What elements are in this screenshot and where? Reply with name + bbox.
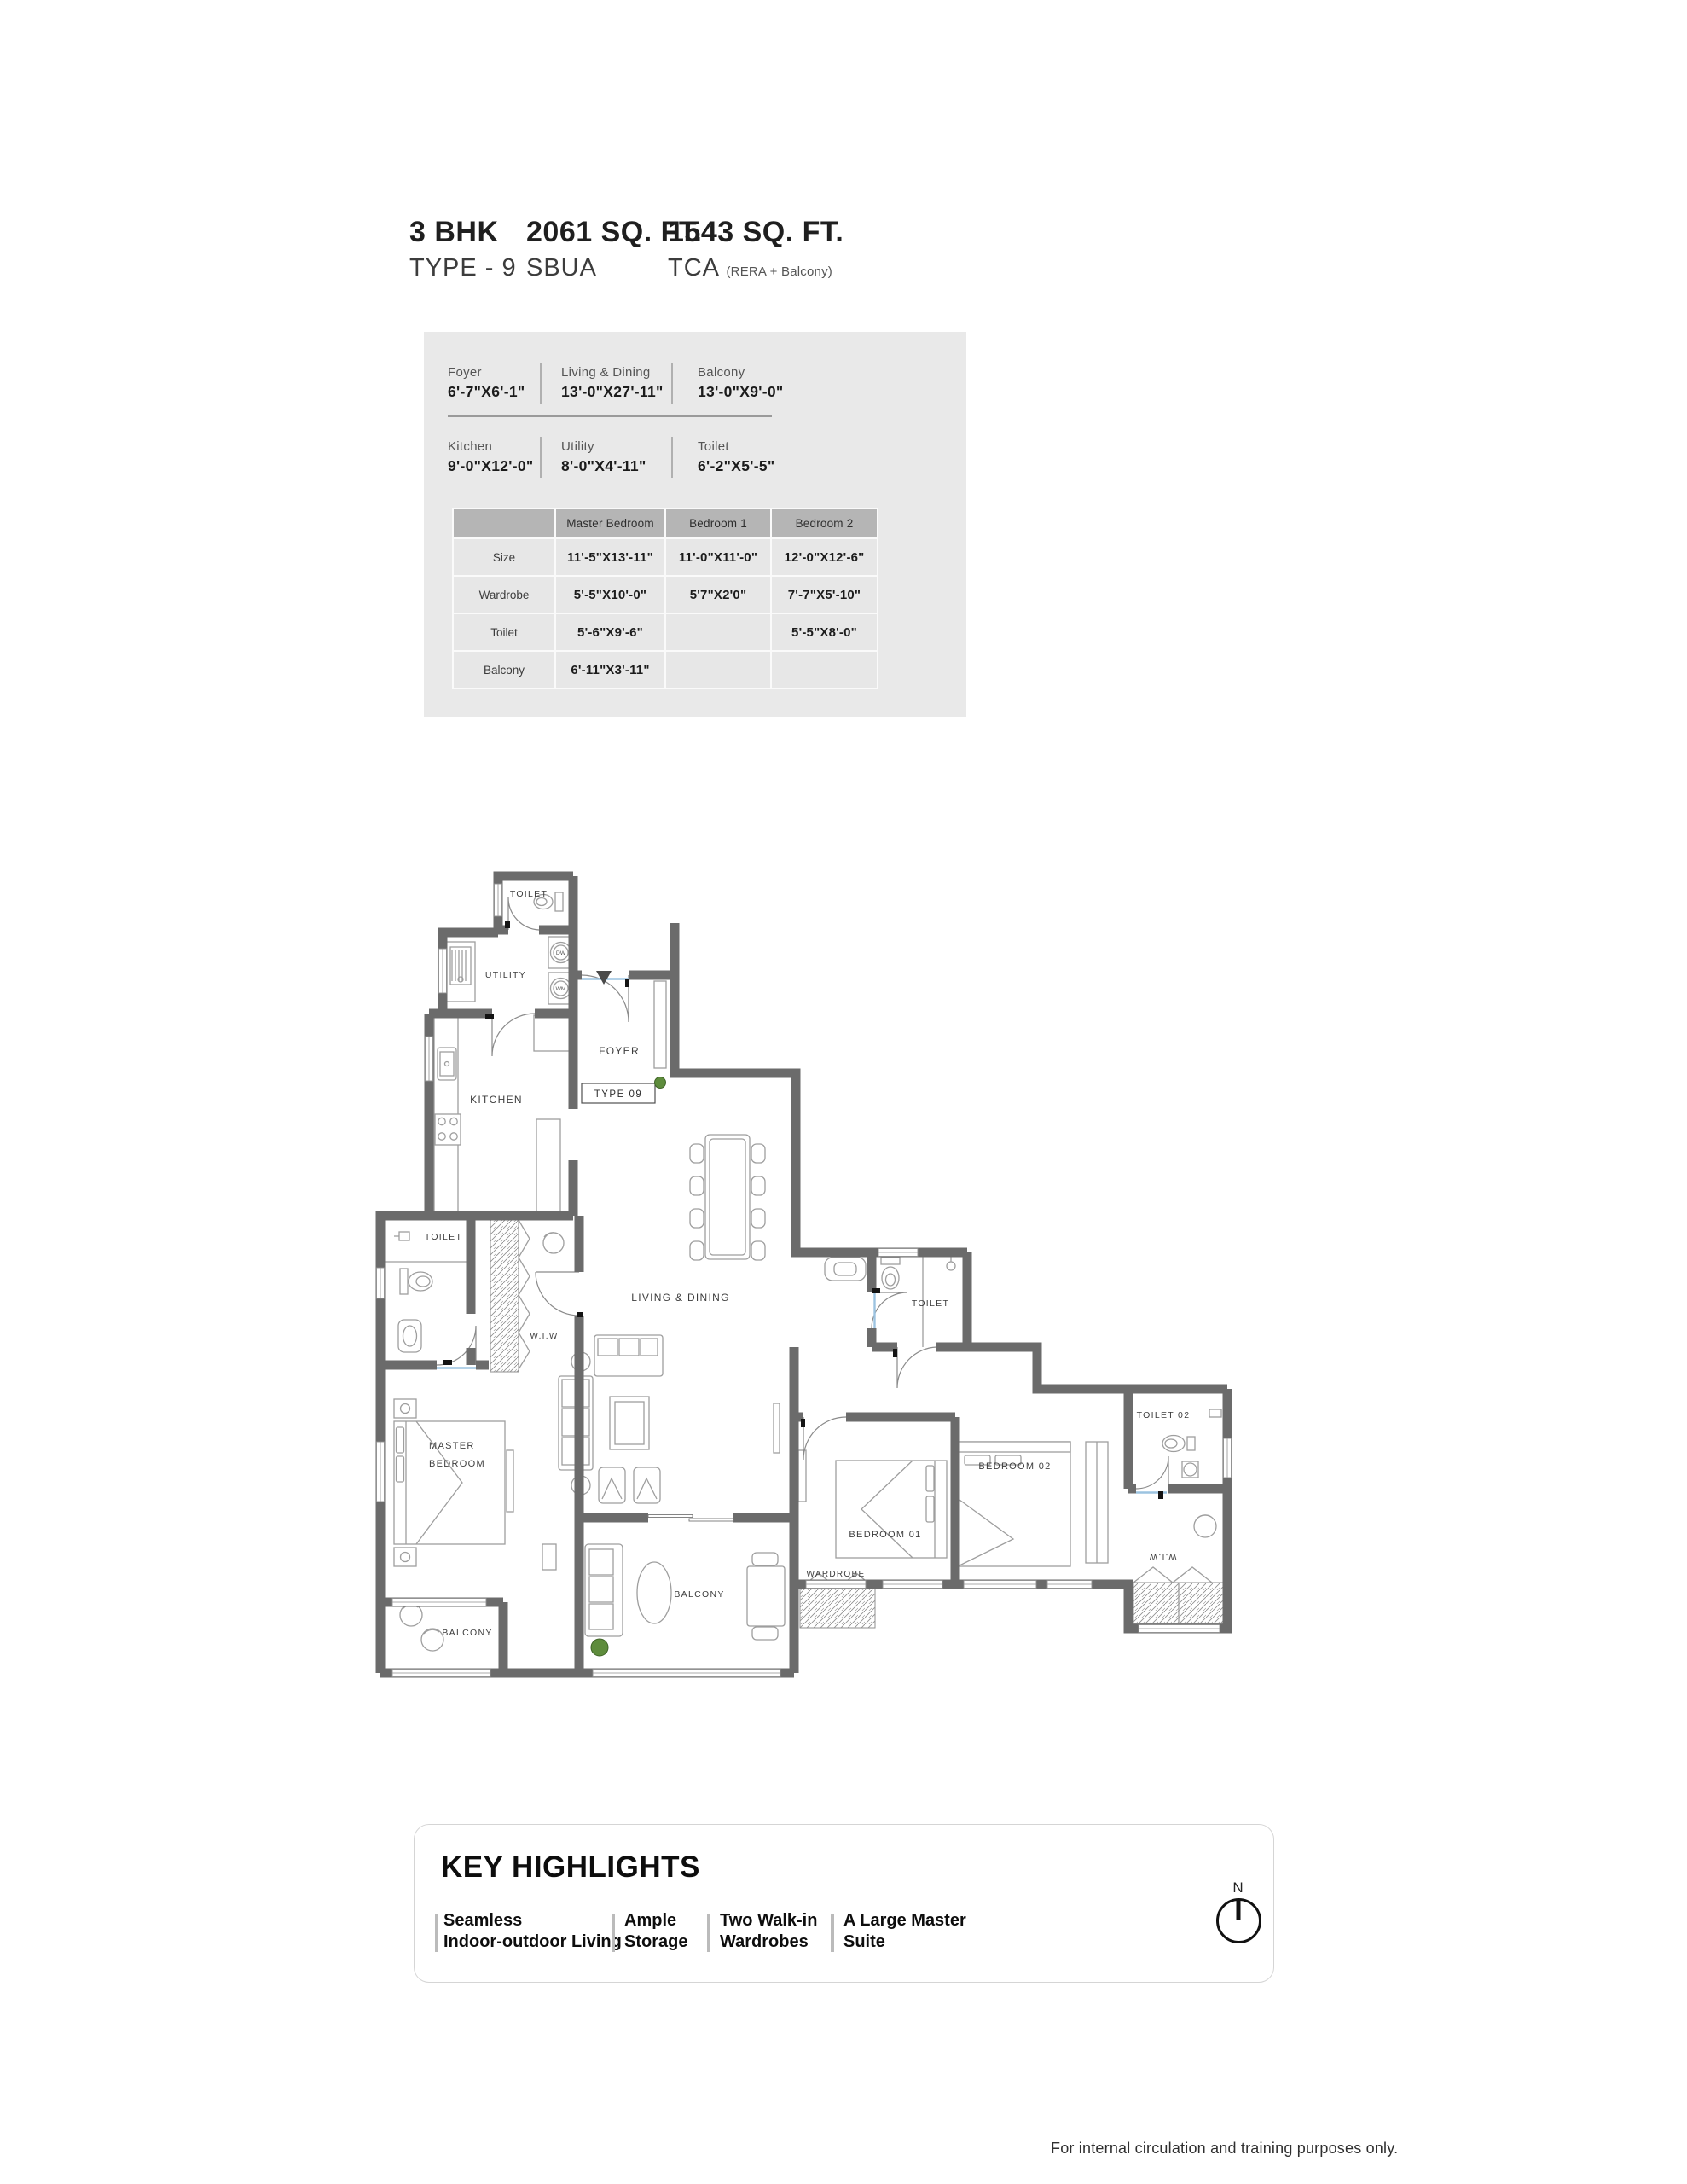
spec-value: 9'-0"X12'-0" <box>448 457 534 475</box>
col-header <box>453 508 555 538</box>
kitchen-counter-icon <box>434 1015 573 1211</box>
brochure-page: 3 BHK TYPE - 9 2061 SQ. FT. SBUA 1543 SQ… <box>0 0 1687 2184</box>
divider <box>831 1914 834 1952</box>
divider <box>435 1914 438 1952</box>
tca-note: (RERA + Balcony) <box>726 264 832 279</box>
bedroom2-door-icon <box>897 1347 936 1388</box>
hinge-mark <box>893 1349 897 1357</box>
spec-value: 13'-0"X9'-0" <box>698 383 784 401</box>
unit-type-title: 3 BHK <box>409 215 517 249</box>
spec-value: 8'-0"X4'-11" <box>561 457 646 475</box>
tca-label: TCA (RERA + Balcony) <box>668 253 843 287</box>
room-label-bedroom1-wardrobe: WARDROBE <box>807 1570 866 1579</box>
table-header-row: Master Bedroom Bedroom 1 Bedroom 2 <box>453 508 878 538</box>
highlight-line: Seamless <box>443 1910 622 1931</box>
divider <box>540 437 542 478</box>
hinge-mark <box>625 979 629 987</box>
divider <box>612 1914 615 1952</box>
spec-label: Foyer <box>448 365 525 380</box>
bedroom1-bed-icon <box>798 1450 947 1558</box>
row-label: Toilet <box>453 613 555 651</box>
cell: 6'-11"X3'-11" <box>555 651 665 688</box>
spec-balcony: Balcony 13'-0"X9'-0" <box>698 365 784 401</box>
hinge-mark <box>443 1360 452 1365</box>
room-label-utility: UTILITY <box>485 970 526 980</box>
spec-kitchen: Kitchen 9'-0"X12'-0" <box>448 439 534 475</box>
highlight-line: Two Walk-in <box>720 1910 817 1931</box>
col-header-master-bedroom: Master Bedroom <box>555 508 665 538</box>
spec-label: Toilet <box>698 439 774 454</box>
tca-value: 1543 SQ. FT. <box>668 215 843 249</box>
key-highlights-title: KEY HIGHLIGHTS <box>441 1850 700 1885</box>
utility-sink-icon <box>446 942 475 1002</box>
key-highlights-card: KEY HIGHLIGHTS Seamless Indoor-outdoor L… <box>414 1824 1274 1983</box>
cell <box>665 651 771 688</box>
balcony-left-chairs-icon <box>400 1604 443 1651</box>
type-label: TYPE 09 <box>594 1089 643 1100</box>
plan-annotations: TYPE 09 <box>582 971 666 1103</box>
room-label-bedroom1: BEDROOM 01 <box>849 1530 921 1540</box>
master-bed-icon <box>394 1399 556 1570</box>
table-row: Toilet 5'-6"X9'-6" 5'-5"X8'-0" <box>453 613 878 651</box>
bedroom1-door-icon <box>803 1417 846 1460</box>
room-label-kitchen: KITCHEN <box>470 1094 523 1106</box>
footer-disclaimer: For internal circulation and training pu… <box>1051 2140 1398 2158</box>
spec-label: Utility <box>561 439 646 454</box>
hinge-mark <box>801 1419 805 1427</box>
spec-foyer: Foyer 6'-7"X6'-1" <box>448 365 525 401</box>
divider <box>448 415 772 417</box>
highlight-line: A Large Master <box>843 1910 966 1931</box>
highlight-item: Ample Storage <box>624 1910 687 1953</box>
compass-north-label: N <box>1213 1879 1264 1896</box>
room-label-bedroom1-toilet: TOILET <box>912 1298 949 1309</box>
highlight-item: A Large Master Suite <box>843 1910 966 1953</box>
room-label-bedroom2: BEDROOM 02 <box>978 1461 1051 1472</box>
spec-utility: Utility 8'-0"X4'-11" <box>561 439 646 475</box>
col-header-bedroom-1: Bedroom 1 <box>665 508 771 538</box>
doors-layer <box>437 897 1168 1489</box>
cell: 5'-5"X10'-0" <box>555 576 665 613</box>
highlight-line: Wardrobes <box>720 1931 817 1953</box>
cell <box>771 651 878 688</box>
washing-machine-label: WM <box>555 986 565 992</box>
table-row: Balcony 6'-11"X3'-11" <box>453 651 878 688</box>
divider <box>671 363 673 404</box>
room-label-wiw-right: W.I.W <box>1148 1552 1176 1561</box>
dishwasher-label: DW <box>556 950 566 956</box>
table-row: Wardrobe 5'-5"X10'-0" 5'7"X2'0" 7'-7"X5'… <box>453 576 878 613</box>
highlight-line: Suite <box>843 1931 966 1953</box>
cell: 5'7"X2'0" <box>665 576 771 613</box>
room-label-balcony-left: BALCONY <box>442 1628 492 1638</box>
master-suite-door-icon <box>536 1272 579 1316</box>
divider <box>540 363 542 404</box>
sofa-set-icon <box>559 1335 780 1503</box>
bedroom1-toilet-door-icon <box>872 1292 907 1328</box>
balcony-center-furniture-icon <box>585 1544 785 1656</box>
highlight-line: Indoor-outdoor Living <box>443 1931 622 1953</box>
row-label: Size <box>453 538 555 576</box>
spec-label: Living & Dining <box>561 365 664 380</box>
row-label: Wardrobe <box>453 576 555 613</box>
dining-table-icon <box>690 1135 765 1260</box>
room-label-toilet2: TOILET 02 <box>1137 1410 1191 1420</box>
spec-value: 6'-2"X5'-5" <box>698 457 774 475</box>
cell <box>665 613 771 651</box>
north-compass-icon: N <box>1213 1879 1264 1943</box>
stove-icon <box>435 1114 461 1145</box>
hinge-mark <box>577 1312 583 1317</box>
highlight-line: Storage <box>624 1931 687 1953</box>
header-tca: 1543 SQ. FT. TCA (RERA + Balcony) <box>668 215 843 287</box>
wall <box>429 876 573 1216</box>
highlight-item: Seamless Indoor-outdoor Living <box>443 1910 622 1953</box>
furniture-layer: DW WM <box>380 892 1224 1656</box>
spec-toilet: Toilet 6'-2"X5'-5" <box>698 439 774 475</box>
hinge-mark <box>872 1288 880 1293</box>
divider <box>671 437 673 478</box>
master-wardrobe-icon <box>490 1218 564 1372</box>
plant-icon <box>591 1639 608 1656</box>
hinge-mark <box>1158 1491 1163 1499</box>
bedroom-dimensions-table: Master Bedroom Bedroom 1 Bedroom 2 Size … <box>452 508 878 689</box>
cell: 11'-0"X11'-0" <box>665 538 771 576</box>
spec-living-dining: Living & Dining 13'-0"X27'-11" <box>561 365 664 401</box>
room-label-foyer: FOYER <box>599 1045 640 1057</box>
highlight-item: Two Walk-in Wardrobes <box>720 1910 817 1953</box>
spec-label: Kitchen <box>448 439 534 454</box>
right-wardrobe-icon <box>1133 1515 1224 1623</box>
col-header-bedroom-2: Bedroom 2 <box>771 508 878 538</box>
utility-door-icon <box>492 1014 535 1056</box>
cell: 5'-5"X8'-0" <box>771 613 878 651</box>
toilet2-door-icon <box>1136 1456 1168 1489</box>
cell: 7'-7"X5'-10" <box>771 576 878 613</box>
room-label-living-dining: LIVING & DINING <box>631 1292 730 1304</box>
spec-label: Balcony <box>698 365 784 380</box>
sliding-door-icon <box>648 1515 733 1522</box>
master-toilet-fixtures-icon <box>380 1232 471 1352</box>
room-label-master-bedroom-2: BEDROOM <box>429 1459 485 1469</box>
cell: 5'-6"X9'-6" <box>555 613 665 651</box>
hinge-mark <box>485 1014 494 1019</box>
room-spec-panel: Foyer 6'-7"X6'-1" Living & Dining 13'-0"… <box>424 332 966 717</box>
plant-icon <box>655 1077 666 1089</box>
cell: 12'-0"X12'-6" <box>771 538 878 576</box>
room-label-balcony-center: BALCONY <box>674 1589 724 1600</box>
hinge-mark <box>505 921 510 928</box>
spec-value: 13'-0"X27'-11" <box>561 383 664 401</box>
floor-plan: DW WM <box>367 853 1322 1706</box>
spec-value: 6'-7"X6'-1" <box>448 383 525 401</box>
room-label-master-toilet: TOILET <box>425 1232 462 1242</box>
room-labels: TOILET UTILITY FOYER KITCHEN LIVING & DI… <box>425 889 1191 1638</box>
cell: 11'-5"X13'-11" <box>555 538 665 576</box>
divider <box>707 1914 710 1952</box>
table-row: Size 11'-5"X13'-11" 11'-0"X11'-0" 12'-0"… <box>453 538 878 576</box>
row-label: Balcony <box>453 651 555 688</box>
room-label-master-bedroom-1: MASTER <box>429 1441 475 1451</box>
room-label-toilet-top: TOILET <box>510 889 548 899</box>
bedroom2-bed-icon <box>958 1442 1108 1566</box>
room-label-master-wiw: W.I.W <box>530 1332 558 1341</box>
unit-type-subtitle: TYPE - 9 <box>409 253 517 282</box>
shoe-cabinet-icon <box>654 981 666 1068</box>
header-unit-type: 3 BHK TYPE - 9 <box>409 215 517 282</box>
highlight-line: Ample <box>624 1910 687 1931</box>
